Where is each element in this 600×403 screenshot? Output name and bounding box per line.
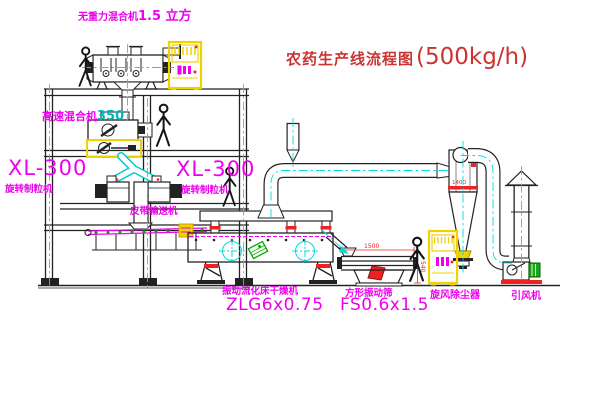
dim-cyclone: 1400	[452, 180, 466, 186]
granulator-left-model-label: XL-300	[8, 158, 87, 179]
cyclone-label: 旋风除尘器	[430, 291, 480, 301]
granulator-right-model-label: XL-300	[176, 159, 255, 180]
title-main: 农药生产线流程图	[286, 48, 414, 69]
sieve-model-label: FS0.6x1.5	[340, 297, 429, 314]
fan-label: 引风机	[511, 292, 541, 302]
green-tag	[248, 241, 267, 258]
person-figure	[410, 238, 424, 281]
high-speed-mixer-label: 高速混合机350	[42, 110, 124, 123]
granulator-left-name-label: 旋转制粒机	[5, 185, 53, 195]
diagram-title: 农药生产线流程图 (500kg/h)	[286, 44, 528, 70]
fluid-bed-dryer	[188, 211, 337, 284]
belt-conveyor-label: 皮带输送机	[130, 207, 178, 217]
dim-sieve-length: 1500	[364, 243, 379, 250]
granulator-left	[95, 176, 129, 202]
cad-flow-diagram: 1500 540 1400	[0, 0, 600, 403]
dryer-exhaust-duct	[258, 163, 449, 218]
granulator-right-name-label: 旋转制粒机	[181, 186, 229, 196]
person-figure	[157, 105, 170, 146]
dryer-model-label: ZLG6x0.75	[226, 297, 324, 314]
control-cabinet-ground	[429, 231, 457, 286]
gravity-mixer-label: 无重力混合机1.5 立方	[78, 10, 192, 23]
title-capacity: (500kg/h)	[416, 44, 528, 70]
